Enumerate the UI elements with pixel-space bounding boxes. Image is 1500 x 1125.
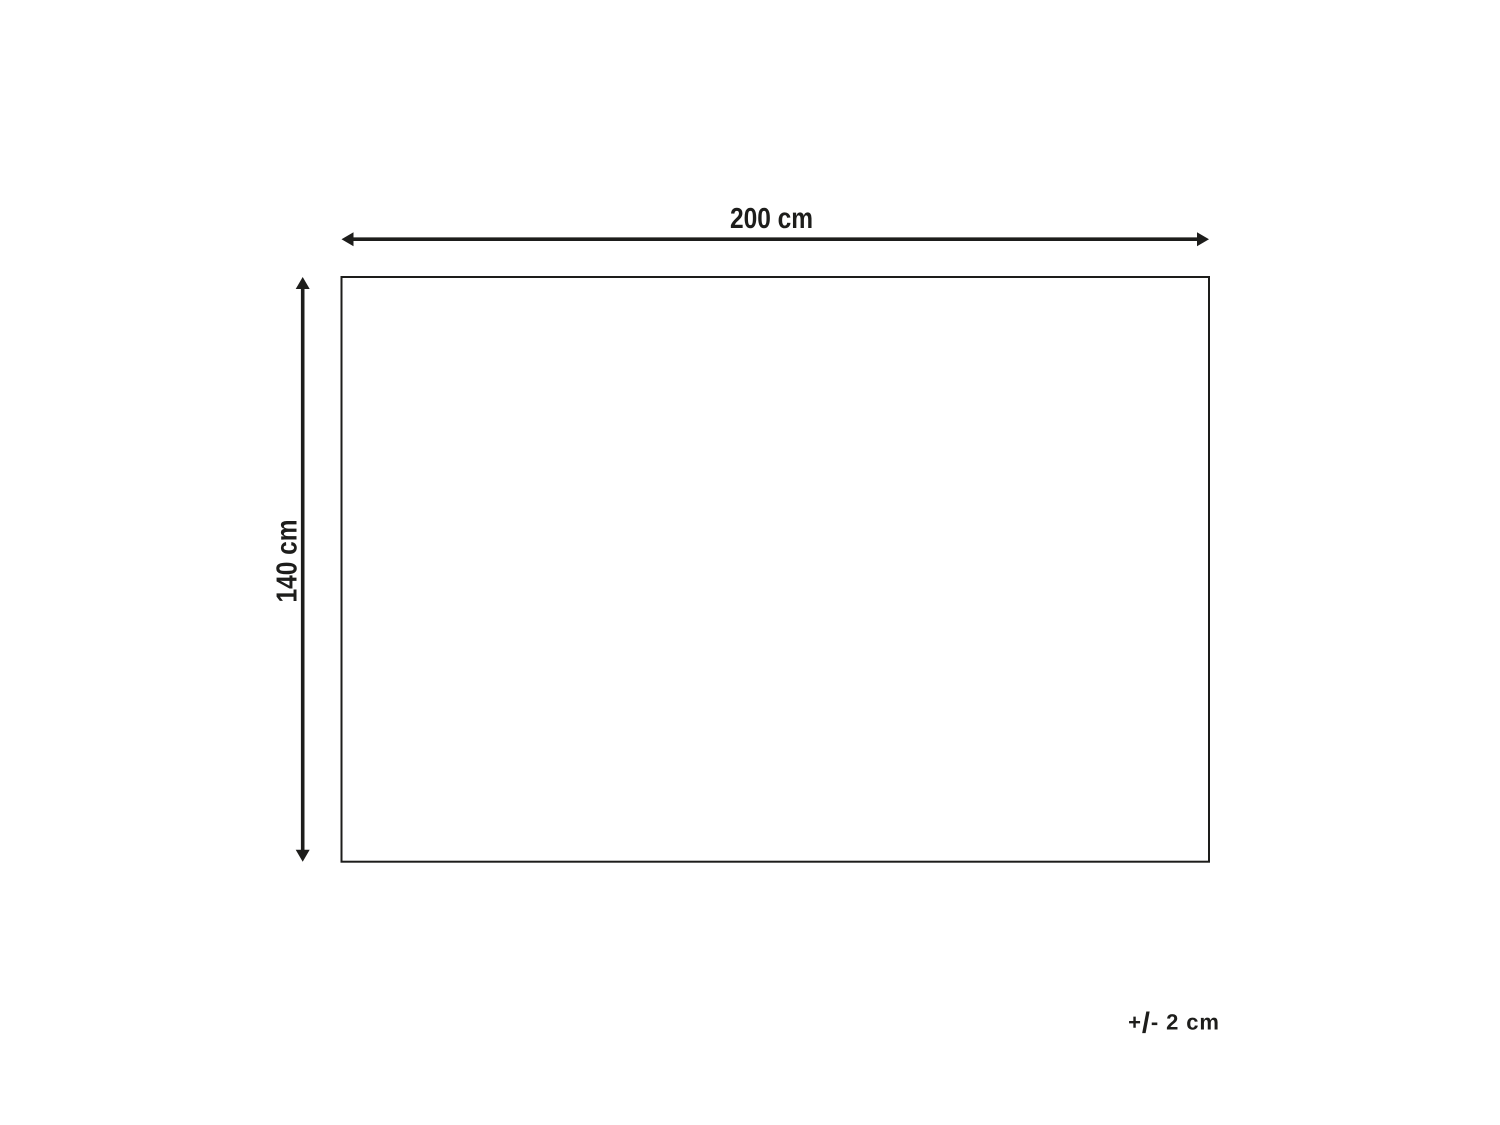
svg-text:140 cm: 140 cm xyxy=(272,519,304,602)
svg-text:200 cm: 200 cm xyxy=(730,203,813,235)
